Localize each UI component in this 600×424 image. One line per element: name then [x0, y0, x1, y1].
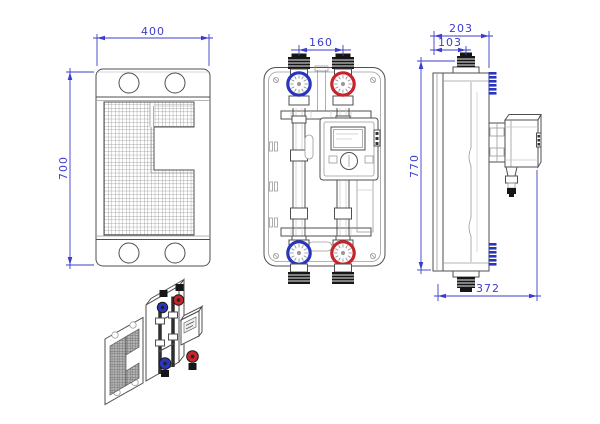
side-backplate [433, 73, 443, 271]
valve-thermometer-bottom-left-blue [288, 240, 310, 264]
side-view [433, 53, 541, 293]
dimension-hx-height: 700 [57, 68, 94, 269]
iso-bottom-cap-right [189, 363, 197, 370]
valve-thermometer-top-left-blue [288, 73, 310, 105]
iso-top-cap-left [160, 290, 168, 297]
dimension-hx-width: 400 [93, 25, 213, 66]
heat-exchanger-front-view [96, 69, 210, 266]
dim-label-160: 160 [309, 36, 333, 49]
controller-display [331, 127, 365, 150]
side-top-connection [453, 53, 479, 74]
side-housing [443, 73, 489, 271]
dim-label-400: 400 [141, 25, 165, 38]
side-drain-valve [506, 167, 518, 197]
valve-thermometer-bottom-right-red [332, 240, 354, 264]
iso-bottom-cap-left [161, 370, 169, 377]
iso-pump-station [146, 280, 202, 382]
handle-slot [305, 135, 313, 159]
hx-port-bottom-right [165, 243, 185, 263]
technical-drawing-page: 400 700 [0, 0, 600, 424]
side-pump-motor [489, 115, 541, 168]
dim-label-770: 770 [408, 154, 421, 178]
isometric-view [105, 280, 202, 405]
pump-controller [320, 118, 380, 180]
dim-label-103: 103 [438, 36, 462, 49]
side-threaded-port-top [489, 72, 497, 95]
valve-thermometer-top-right-red [332, 73, 354, 105]
pump-station-front-view [264, 54, 385, 285]
pump-station-technical-drawing: 400 700 [0, 0, 600, 424]
iso-top-cap-right [176, 284, 184, 291]
bottom-right-connection [332, 264, 354, 284]
dim-label-700: 700 [57, 156, 70, 180]
bottom-left-connection [288, 264, 310, 284]
dim-label-203: 203 [449, 22, 473, 35]
iso-heat-exchanger [105, 318, 143, 405]
hx-port-top-left [119, 73, 139, 93]
hx-port-bottom-left [119, 243, 139, 263]
dimension-valve-spacing: 160 [291, 36, 351, 56]
hx-port-top-right [165, 73, 185, 93]
side-threaded-port-bottom [489, 243, 497, 266]
dim-label-372: 372 [476, 282, 500, 295]
dimension-depth-top-port: 103 [430, 36, 471, 55]
